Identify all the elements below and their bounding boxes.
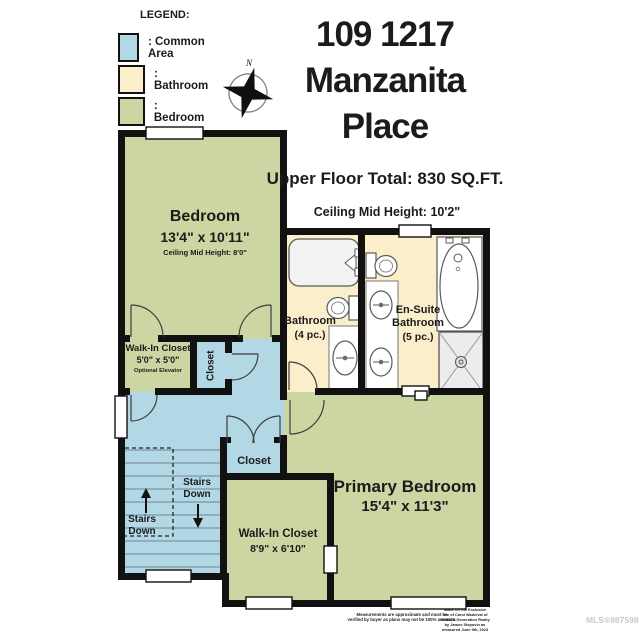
address-line-2: Manzanita bbox=[268, 58, 502, 104]
bathroom-main-name: Bathroom bbox=[272, 315, 348, 328]
mls-watermark: MLS®987598 bbox=[586, 615, 638, 625]
stairs-down-right-label: Stairs Down bbox=[172, 477, 222, 501]
legend-label-bathroom: : Bathroom bbox=[154, 68, 210, 92]
ensuite-label: En-Suite Bathroom (5 pc.) bbox=[380, 304, 456, 343]
walk-in-closet-large-label: Walk-In Closet 8'9" x 6'10" bbox=[226, 528, 330, 555]
bedroom-dimensions: 13'4" x 10'11" bbox=[127, 229, 283, 246]
wall-bathroom-divider bbox=[358, 235, 365, 388]
wall-corridor-top-a bbox=[118, 388, 130, 395]
wall-walkin-large-right-b bbox=[327, 572, 334, 600]
primary-bedroom-dimensions: 15'4" x 11'3" bbox=[300, 498, 510, 516]
floorplan-page: LEGEND: : Common Area : Bathroom : Bedro… bbox=[0, 0, 640, 640]
hallway-floor bbox=[229, 339, 284, 392]
bathroom-main-pieces: (4 pc.) bbox=[272, 329, 348, 341]
stairs-down-left-label: Stairs Down bbox=[117, 514, 167, 538]
wall-right bbox=[483, 228, 490, 607]
address-line-1: 109 1217 bbox=[268, 12, 502, 58]
wall-bathrooms-top bbox=[280, 228, 490, 235]
ensuite-pieces: (5 pc.) bbox=[380, 331, 456, 343]
walkin-large-window bbox=[246, 597, 292, 609]
bedroom-name: Bedroom bbox=[127, 208, 283, 227]
walkin-small-name: Walk-In Closet bbox=[120, 343, 196, 354]
bathtub-icon bbox=[289, 239, 360, 286]
preparer-credit: Made for the Exclusive use of Carol Wade… bbox=[432, 607, 498, 632]
wall-bedroom-bottom-a bbox=[118, 335, 130, 342]
bathroom-swatch-icon bbox=[118, 65, 145, 94]
left-wall-window bbox=[115, 396, 127, 438]
ensuite-name-line2: Bathroom bbox=[380, 317, 456, 330]
floor-total: Upper Floor Total: 830 SQ.FT. bbox=[262, 169, 508, 189]
walkin-large-name: Walk-In Closet bbox=[226, 528, 330, 542]
legend-item-bedroom: : Bedroom bbox=[118, 97, 206, 126]
legend-title: LEGEND: bbox=[140, 9, 190, 21]
bedroom-ceiling-note: Ceiling Mid Height: 8'0" bbox=[127, 249, 283, 258]
wall-bathrooms-bottom-a bbox=[315, 388, 403, 395]
address-line-3: Place bbox=[268, 104, 502, 150]
legend-item-bathroom: : Bathroom bbox=[118, 65, 210, 94]
lower-closet-label: Closet bbox=[224, 455, 284, 468]
walkin-small-note: Optional Elevator bbox=[120, 368, 196, 375]
ceiling-height-note: Ceiling Mid Height: 10'2" bbox=[262, 205, 512, 219]
compass-north-label: N bbox=[245, 58, 253, 68]
page-title: 109 1217 Manzanita Place bbox=[268, 12, 502, 150]
legend-label-common-area: : Common Area bbox=[148, 36, 206, 60]
wall-stairs-bottom-connector bbox=[222, 573, 229, 607]
walkin-small-dimensions: 5'0" x 5'0" bbox=[120, 355, 196, 366]
legend-label-bedroom: : Bedroom bbox=[154, 100, 207, 124]
stairs-window bbox=[146, 570, 191, 582]
bedroom-label: Bedroom 13'4" x 10'11" Ceiling Mid Heigh… bbox=[127, 208, 283, 258]
toilet-ensuite-icon bbox=[366, 253, 397, 278]
ensuite-name-line1: En-Suite bbox=[380, 304, 456, 317]
bedroom-window bbox=[146, 127, 203, 139]
wall-bathrooms-bottom-b bbox=[428, 388, 490, 395]
hall-closet-label: Closet bbox=[194, 340, 228, 391]
ensuite-window bbox=[399, 225, 431, 237]
walkin-large-dimensions: 8'9" x 6'10" bbox=[226, 543, 330, 555]
wall-closet-stub-left bbox=[220, 437, 231, 443]
legend-item-common-area: : Common Area bbox=[118, 33, 206, 62]
bedroom-swatch-icon bbox=[118, 97, 145, 126]
primary-bedroom-name: Primary Bedroom bbox=[300, 477, 510, 497]
common-area-swatch-icon bbox=[118, 33, 139, 62]
bathroom-main-label: Bathroom (4 pc.) bbox=[272, 315, 348, 341]
primary-bedroom-label: Primary Bedroom 15'4" x 11'3" bbox=[300, 477, 510, 516]
ensuite-door-slab-handle bbox=[415, 391, 427, 400]
walk-in-closet-small-label: Walk-In Closet 5'0" x 5'0" Optional Elev… bbox=[120, 343, 196, 375]
